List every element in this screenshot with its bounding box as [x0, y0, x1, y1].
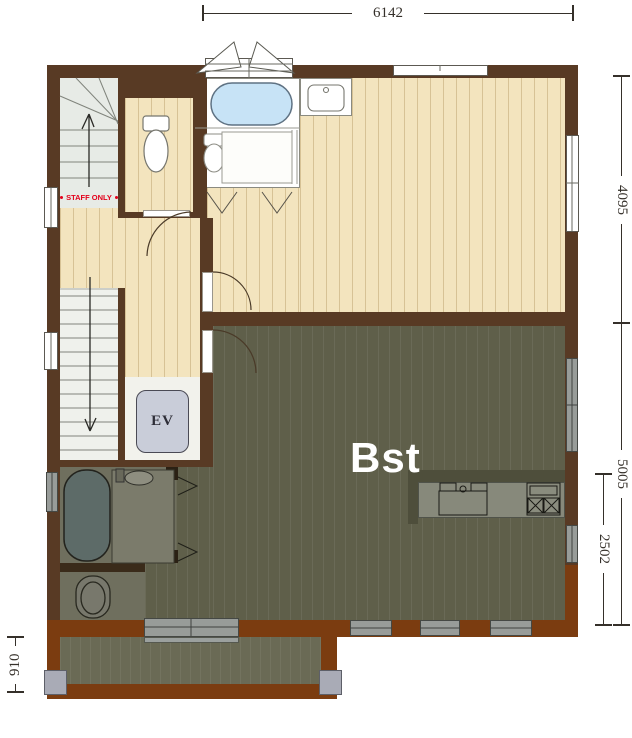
- wall-toilet-lower-top: [60, 563, 145, 572]
- dim-line-right-outer: [621, 76, 622, 625]
- wall-toilet-bathroom: [193, 78, 207, 218]
- floor-ev-corridor: [125, 312, 200, 384]
- balcony-column-left: [44, 670, 67, 695]
- staff-only-sign: STAFF ONLY: [56, 190, 122, 205]
- dim-label-right-lower: 5005: [609, 450, 632, 498]
- room-label-bst: Bst: [350, 434, 421, 482]
- dim-label-left-balcony: 910: [3, 646, 28, 684]
- room-staircase-upper: [60, 78, 118, 208]
- window-bottom-2: [420, 620, 460, 636]
- window-top-east: [393, 65, 488, 76]
- wall-above-toilet: [118, 78, 193, 98]
- window-bottom-3: [490, 620, 532, 636]
- dim-tick-top-left: [202, 5, 204, 21]
- floor-balcony: [60, 637, 321, 684]
- dim-label-top-width: 6142: [352, 4, 424, 22]
- room-staircase-lower: [60, 288, 118, 460]
- wall-bath-stub-south: [166, 550, 178, 563]
- door-leaf-toilet-upper: [143, 210, 190, 217]
- dim-tick-right-bottom: [613, 624, 630, 626]
- staff-only-text: STAFF ONLY: [66, 193, 112, 202]
- door-leaf-mainroom: [202, 272, 213, 312]
- window-bathroom-top: [205, 58, 293, 78]
- balcony-column-right: [319, 670, 342, 695]
- floor-bst-west: [176, 467, 213, 620]
- window-right-bst-1: [566, 358, 578, 452]
- balcony-door-sill: [144, 637, 239, 643]
- floor-main-room-a: [352, 78, 565, 312]
- wall-floor-divider: [200, 312, 578, 326]
- window-left-bath: [46, 472, 58, 512]
- window-left-middle: [44, 332, 58, 370]
- dim-tick-right-top: [613, 75, 630, 77]
- window-right-upper: [566, 135, 579, 232]
- dim-tick-inner-bottom: [595, 624, 612, 626]
- dim-tick-left-top: [7, 636, 24, 638]
- wall-bath-stub-north: [166, 467, 178, 480]
- staff-dot-left: [60, 196, 63, 199]
- window-right-bst-2: [566, 525, 578, 563]
- room-bathroom-unit: [195, 78, 300, 188]
- door-leaf-bst: [202, 330, 213, 373]
- dim-tick-inner-top: [595, 473, 612, 475]
- wall-ev-bottom: [60, 460, 213, 467]
- room-bath-lower: [60, 467, 176, 563]
- dim-label-right-inner: 2502: [591, 525, 616, 573]
- room-toilet-lower: [60, 572, 145, 620]
- wall-top: [47, 65, 578, 78]
- kitchen-counter: [418, 482, 565, 518]
- floor-bst-southwest: [145, 563, 176, 620]
- dim-tick-left-bottom: [7, 691, 24, 693]
- floorplan-canvas: Bst EV STAFF ONLY 6142 4095 5005 2502 91…: [0, 0, 632, 738]
- window-bottom-1: [350, 620, 392, 636]
- room-washbasin: [300, 78, 352, 116]
- room-label-ev: EV: [136, 390, 189, 453]
- balcony-sliding-door: [144, 618, 239, 637]
- dim-tick-right-middle: [613, 322, 630, 324]
- floor-main-room-b: [300, 116, 352, 312]
- kitchen-pony-wall-h: [408, 470, 565, 482]
- dim-label-right-upper: 4095: [609, 176, 632, 224]
- wall-balcony-bottom: [47, 684, 337, 699]
- dim-tick-top-right: [572, 5, 574, 21]
- staff-dot-right: [115, 196, 118, 199]
- floor-main-room-c: [207, 188, 300, 312]
- room-toilet-upper: [125, 98, 193, 212]
- wall-stair-lower: [118, 288, 125, 467]
